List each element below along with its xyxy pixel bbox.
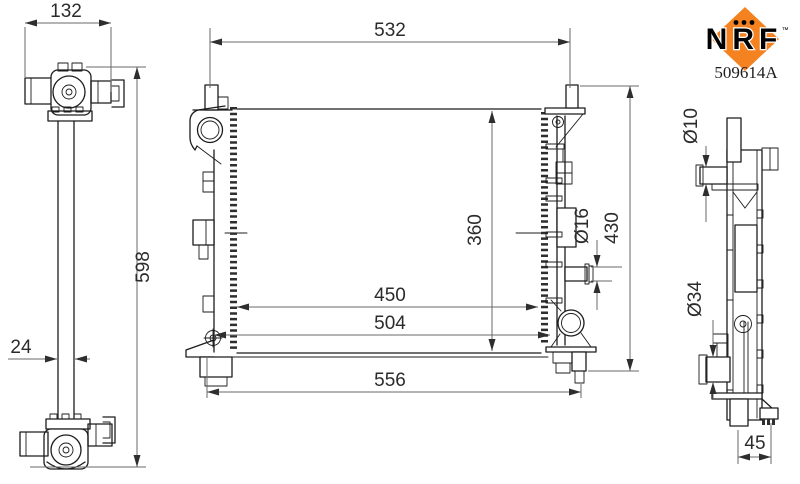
side-clip xyxy=(713,334,728,343)
dim-label-556: 556 xyxy=(374,370,406,391)
mount-bracket-left xyxy=(193,220,214,245)
dim-label-504: 504 xyxy=(374,313,406,334)
front-view-left-tank xyxy=(186,85,234,386)
dim-label-360: 360 xyxy=(465,214,486,246)
dim-label-dia16: Ø16 xyxy=(572,208,593,244)
bottom-mount-peg-right xyxy=(572,352,586,371)
left-view-top-tank xyxy=(25,63,124,121)
side-view-drawing: Ø10 Ø34 45 xyxy=(681,108,778,464)
left-view-pipe-column xyxy=(58,121,74,418)
top-mount-peg-left xyxy=(205,85,218,110)
technical-drawing-page: 132 598 24 xyxy=(0,0,800,484)
mount-foot xyxy=(760,408,778,419)
dim-label-24: 24 xyxy=(10,337,32,358)
dim-label-450: 450 xyxy=(374,285,406,306)
outlet-pipe xyxy=(706,357,730,382)
brand-wordmark: NRF xyxy=(706,23,783,56)
dim-label-598: 598 xyxy=(133,251,154,283)
dim-label-430: 430 xyxy=(602,212,623,244)
dim-label-132: 132 xyxy=(50,1,82,22)
radiator-technical-drawing: 132 598 24 xyxy=(0,0,800,484)
trademark-symbol: ™ xyxy=(782,27,789,34)
drain-pipe xyxy=(565,267,587,281)
dim-label-532: 532 xyxy=(374,20,406,41)
front-view-dimensions: 532 360 430 Ø16 450 504 xyxy=(207,20,639,398)
left-view-drawing: 132 598 24 xyxy=(8,1,154,469)
part-number: 509614A xyxy=(714,63,778,82)
dim-label-dia34: Ø34 xyxy=(685,281,706,317)
bleed-pipe xyxy=(700,167,727,184)
dim-label-45: 45 xyxy=(744,433,765,454)
dim-label-dia10: Ø10 xyxy=(681,108,702,144)
left-view-bottom-tank xyxy=(20,414,115,469)
side-view-body xyxy=(696,118,778,426)
top-mount-peg-right xyxy=(566,85,578,108)
brand-block: NRF ™ 509614A xyxy=(706,7,789,82)
front-view-drawing: 532 360 430 Ø16 450 504 xyxy=(186,20,639,398)
